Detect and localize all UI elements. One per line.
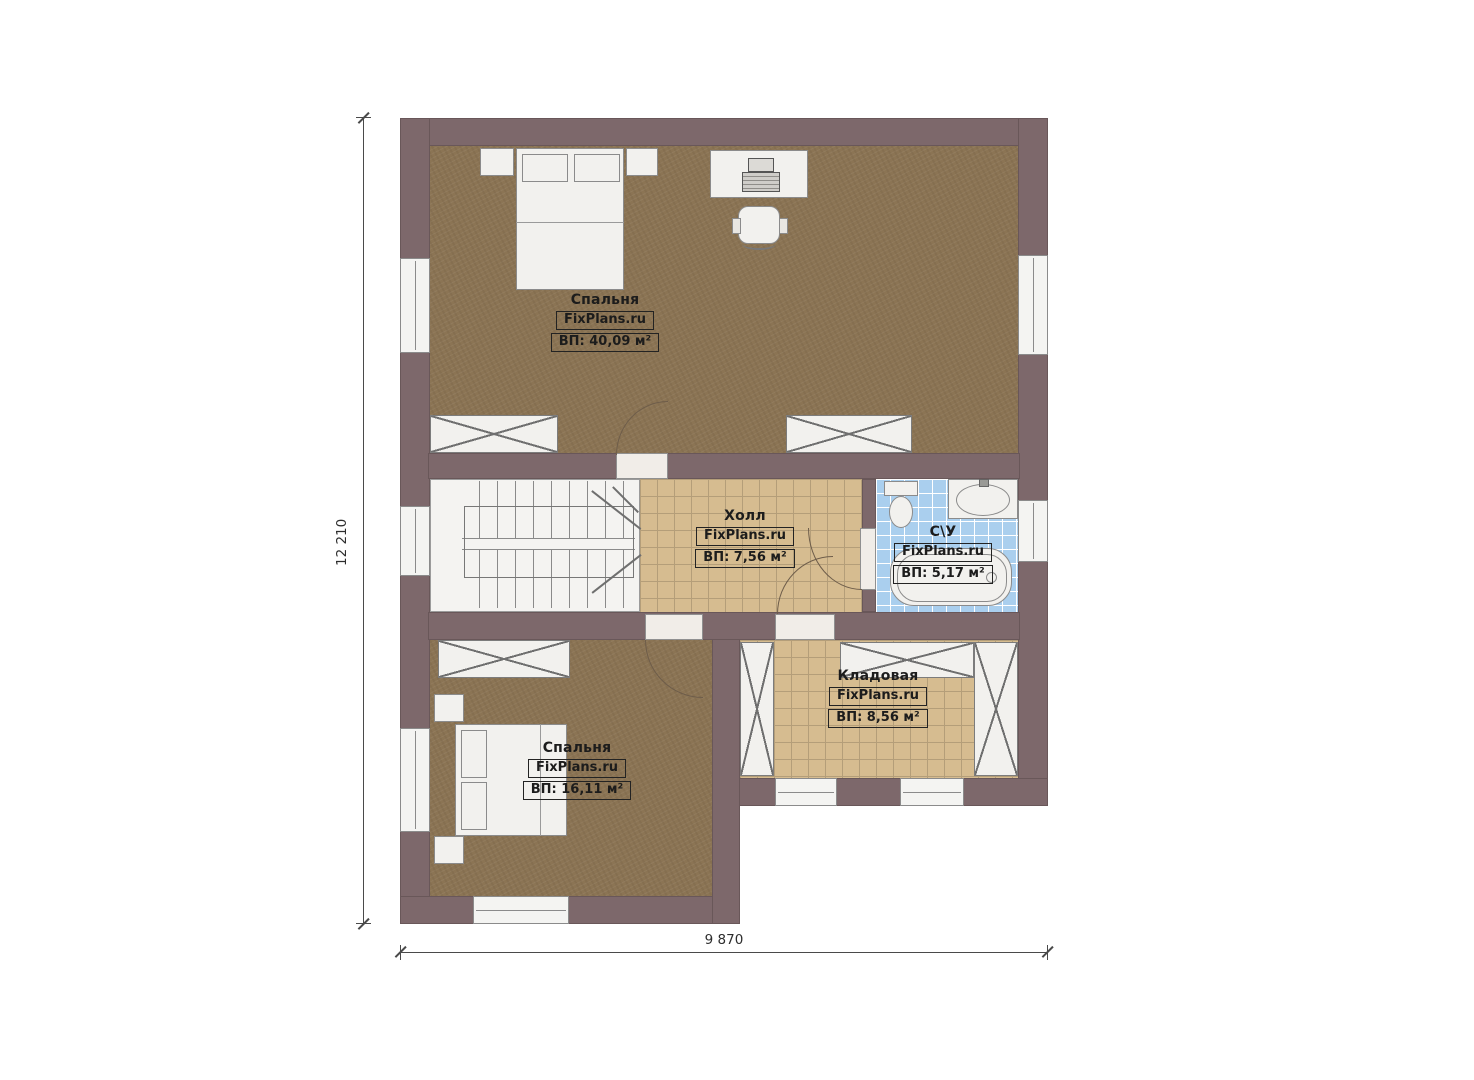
pillow-symbol: [461, 782, 487, 830]
window: [400, 506, 430, 576]
vertical-dimension-line: [363, 118, 364, 924]
wardrobe-symbol: [786, 415, 912, 453]
bed-fold-line: [516, 222, 624, 223]
room-area: ВП: 5,17 м²: [893, 565, 992, 584]
wall-bedroom-storage: [712, 612, 740, 924]
window: [1018, 500, 1048, 562]
brand-watermark: FixPlans.ru: [894, 543, 992, 562]
nightstand-symbol: [626, 148, 658, 176]
printer-symbol: [742, 172, 780, 192]
room-name: Кладовая: [793, 668, 963, 684]
room-area: ВП: 16,11 м²: [523, 781, 631, 800]
sink-symbol: [956, 484, 1010, 516]
chair-armrest: [779, 218, 788, 234]
faucet-symbol: [979, 479, 989, 487]
room-area: ВП: 8,56 м²: [828, 709, 927, 728]
pillow-symbol: [574, 154, 620, 182]
wardrobe-symbol: [974, 642, 1018, 776]
wall-bedroom-hall: [428, 453, 1020, 479]
door: [775, 614, 835, 640]
brand-watermark: FixPlans.ru: [696, 527, 794, 546]
chair-armrest: [732, 218, 741, 234]
wall-hall-bottom: [428, 612, 1020, 640]
outer-wall-right: [1018, 118, 1048, 806]
room-label-storage: Кладовая FixPlans.ru ВП: 8,56 м²: [793, 668, 963, 728]
window: [400, 258, 430, 353]
nightstand-symbol: [434, 694, 464, 722]
window: [400, 728, 430, 832]
outer-wall-bottom-right: [712, 778, 1048, 806]
wardrobe-symbol: [430, 415, 558, 453]
brand-watermark: FixPlans.ru: [829, 687, 927, 706]
room-name: Спальня: [515, 292, 695, 308]
outer-wall-bottom-left: [400, 896, 740, 924]
toilet-symbol: [884, 481, 918, 496]
window: [775, 778, 837, 806]
room-label-bathroom: С\У FixPlans.ru ВП: 5,17 м²: [868, 524, 1018, 584]
wardrobe-symbol: [740, 642, 774, 776]
nightstand-symbol: [480, 148, 514, 176]
horizontal-dimension-label: 9 870: [687, 932, 761, 948]
wardrobe-symbol: [438, 640, 570, 678]
pillow-symbol: [522, 154, 568, 182]
room-area: ВП: 7,56 м²: [695, 549, 794, 568]
room-area: ВП: 40,09 м²: [551, 333, 659, 352]
room-name: Спальня: [487, 740, 667, 756]
chair-base-arc: [742, 238, 776, 250]
printer-symbol: [748, 158, 774, 172]
brand-watermark: FixPlans.ru: [528, 759, 626, 778]
nightstand-symbol: [434, 836, 464, 864]
window: [900, 778, 964, 806]
floor-plan-canvas: 12 210 9 870: [0, 0, 1474, 1080]
window: [1018, 255, 1048, 355]
door: [645, 614, 703, 640]
horizontal-dimension-line: [400, 952, 1048, 953]
window: [473, 896, 569, 924]
door: [616, 453, 668, 479]
room-name: С\У: [868, 524, 1018, 540]
pillow-symbol: [461, 730, 487, 778]
room-label-bedroom-bottom: Спальня FixPlans.ru ВП: 16,11 м²: [487, 740, 667, 800]
room-name: Холл: [665, 508, 825, 524]
vertical-dimension-label: 12 210: [334, 486, 350, 566]
stair-railing: [464, 506, 634, 578]
room-label-hall: Холл FixPlans.ru ВП: 7,56 м²: [665, 508, 825, 568]
outer-wall-top: [400, 118, 1048, 146]
room-label-bedroom-top: Спальня FixPlans.ru ВП: 40,09 м²: [515, 292, 695, 352]
brand-watermark: FixPlans.ru: [556, 311, 654, 330]
